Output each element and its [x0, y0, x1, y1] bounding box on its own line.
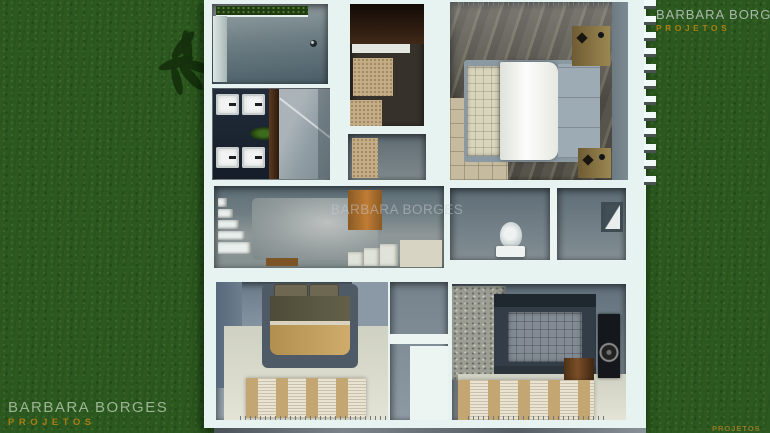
sink — [242, 147, 265, 168]
wardrobe — [350, 4, 424, 44]
room-toilet — [450, 188, 550, 260]
watermark-title: BARBARA BORGES — [656, 7, 770, 22]
watermark-title: BARBARA BORGES — [331, 202, 463, 217]
striped-rug — [246, 378, 366, 418]
wall-block — [410, 346, 448, 420]
bed-bench — [558, 64, 600, 158]
floor-mat — [350, 100, 382, 126]
stair-step — [218, 198, 227, 207]
window-planter — [216, 6, 308, 17]
partition-wall — [550, 188, 557, 260]
room-bedroom-left — [216, 282, 388, 420]
bed-throw — [270, 325, 350, 355]
door-mat — [266, 258, 298, 266]
watermark-top-right: BARBARA BORGES PROJETOS — [656, 7, 770, 33]
sink — [242, 94, 265, 115]
stair-step — [218, 242, 251, 254]
shower-wall-shade — [318, 89, 330, 179]
bed-quilt — [508, 312, 582, 362]
sink — [216, 147, 239, 168]
bed-blanket — [270, 296, 350, 324]
window — [601, 202, 623, 232]
floor-mat — [353, 58, 393, 96]
room-service-patio — [212, 4, 328, 84]
room-kitchen-living — [214, 186, 444, 268]
window-bottom — [468, 416, 608, 420]
counter — [380, 244, 398, 266]
floor-mat — [352, 138, 378, 178]
bed-quilt — [467, 66, 500, 156]
watermark-bottom-right: PROJETOS — [712, 424, 761, 433]
wall-ledge — [213, 16, 227, 82]
window-bottom — [240, 416, 386, 420]
bed-duvet — [500, 62, 558, 160]
nightstand — [578, 148, 611, 178]
room-bathroom-top — [212, 88, 330, 180]
watermark-subtitle: PROJETOS — [712, 424, 761, 433]
wood-partition — [269, 89, 279, 179]
hallway-center — [348, 134, 426, 180]
headboard — [494, 294, 596, 307]
counter — [348, 252, 364, 266]
watermark-subtitle: PROJETOS — [8, 417, 168, 428]
stair-step — [218, 231, 245, 240]
stair-step — [218, 220, 239, 229]
striped-rug — [458, 380, 594, 420]
floorplan-render: BARBARA BORGES PROJETOS BARBARA BORGES B… — [0, 0, 770, 433]
counter — [364, 248, 380, 266]
pergola-teeth — [644, 0, 656, 190]
toilet — [500, 222, 522, 248]
stair-step — [218, 209, 233, 218]
room-bedroom-right — [452, 284, 626, 420]
shelf — [352, 44, 410, 53]
wall-poster — [598, 314, 620, 378]
room-closet — [350, 4, 424, 126]
room-edge — [612, 2, 628, 180]
window-light — [605, 205, 620, 229]
room-side — [557, 188, 626, 260]
room-bedroom-master — [450, 2, 628, 180]
window-top — [458, 2, 620, 6]
ceiling-light — [310, 40, 317, 47]
watermark-title: BARBARA BORGES — [8, 399, 168, 416]
watermark-center: BARBARA BORGES — [331, 202, 463, 217]
counter-island — [400, 240, 442, 267]
watermark-subtitle: PROJETOS — [656, 23, 770, 33]
hallway-bottom — [390, 282, 448, 420]
sink — [216, 94, 239, 115]
house-facade — [214, 428, 646, 433]
toilet-tank — [496, 246, 525, 257]
wall-band — [390, 334, 448, 344]
nightstand — [572, 26, 610, 66]
watermark-bottom-left: BARBARA BORGES PROJETOS — [8, 399, 168, 428]
